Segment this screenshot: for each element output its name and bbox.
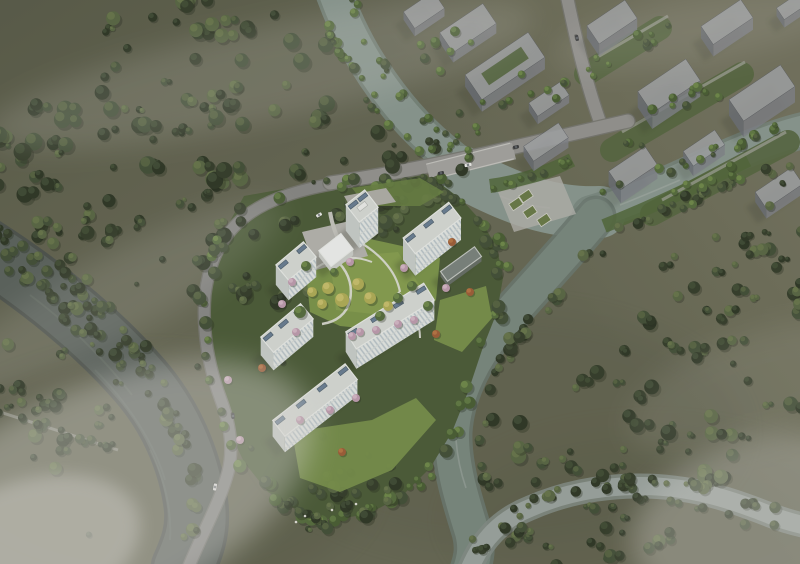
aerial-rendering bbox=[0, 0, 800, 564]
haze-layer bbox=[0, 0, 800, 564]
screenshot bbox=[0, 0, 800, 564]
